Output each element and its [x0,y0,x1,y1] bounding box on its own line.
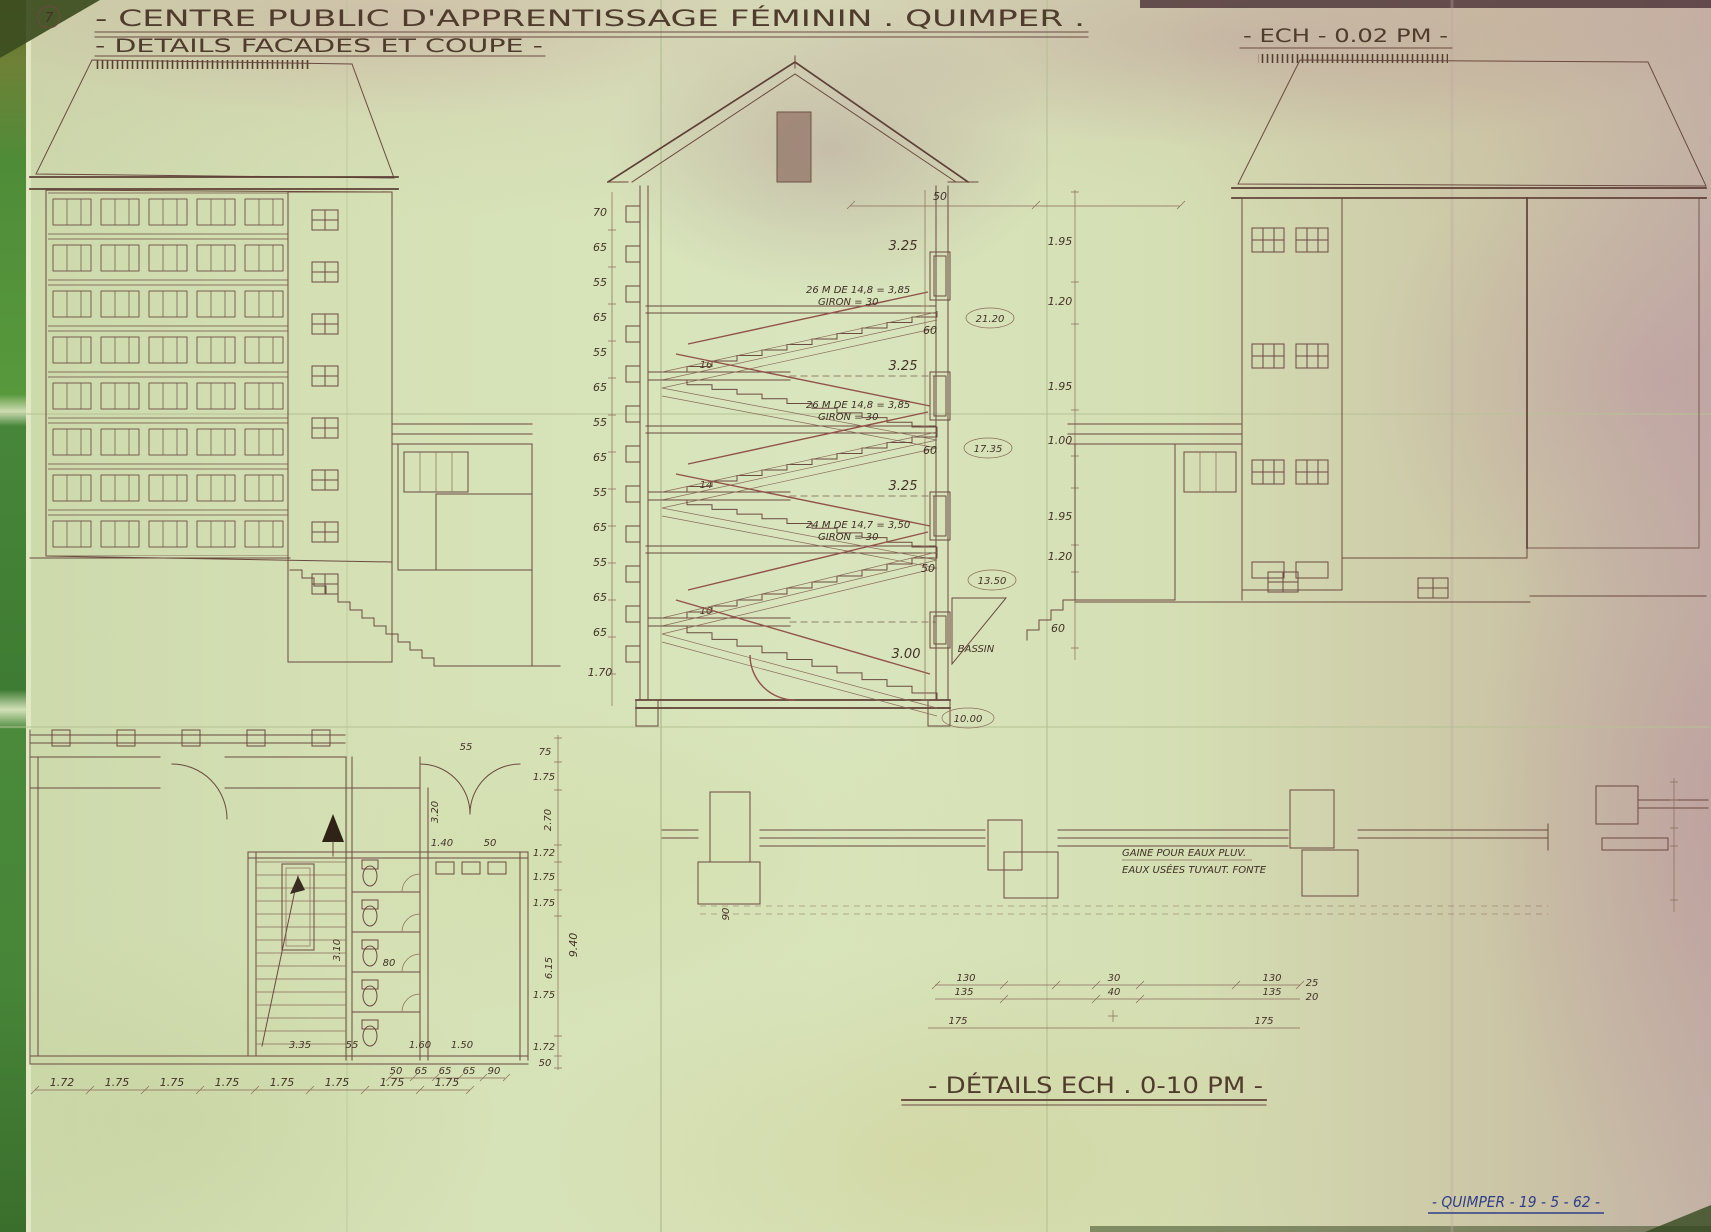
dim-label: 65 [593,381,607,394]
wc-fixtures [362,860,378,1046]
annex-stone [436,494,532,570]
plan-dim: 1.72 [50,1076,75,1089]
details-strip: GAINE POUR EAUX PLUV. EAUX USÉES TUYAUT.… [662,778,1708,1105]
plan-dim: 1.50 [451,1040,473,1051]
title-block: 7 - CENTRE PUBLIC D'APPRENTISSAGE FÉMINI… [38,6,1452,69]
stair-note: GIRON = 30 [818,297,878,308]
dim-label: 65 [593,451,607,464]
dim-label: 65 [593,311,607,324]
dim-label: 1.20 [1048,295,1073,308]
dim-label: 55 [593,556,607,569]
plan-dim: 3.35 [289,1040,311,1051]
stall-doors [402,874,420,1012]
dim-label: 55 [593,486,607,499]
dim-label: 65 [593,626,607,639]
dim-label: 60 [1051,622,1065,635]
dim-label: 1.95 [1048,510,1073,523]
lavabos [436,862,506,874]
north-arrow [322,814,344,842]
right-annex-stone [1075,444,1175,600]
plan-dim: 1.75 [435,1076,460,1089]
dim-label: 1.00 [1048,434,1073,447]
plan-dim: 55 [346,1040,359,1051]
plan-dim: 1.75 [533,872,555,883]
dim-label: 65 [593,521,607,534]
dim-label: 1.95 [1048,235,1073,248]
plan-label: 55 [460,742,473,753]
plan-dim: 1.75 [325,1076,350,1089]
detail-dim: 30 [1108,973,1121,984]
dim-label: 55 [593,276,607,289]
dim-label: 70 [593,206,607,219]
signature-block: - QUIMPER - 19 - 5 - 62 - [1428,1193,1604,1213]
dim-label: 1.20 [1048,550,1073,563]
sheet-number: 7 [45,11,54,26]
plan-dim: 1.75 [270,1076,295,1089]
dim-label: 55 [593,416,607,429]
plan-dim: 1.75 [533,898,555,909]
curtain-wall-grid [48,192,288,556]
stair-note: 24 M DE 14,7 = 3,50 [806,520,910,531]
drawing-svg: 7 - CENTRE PUBLIC D'APPRENTISSAGE FÉMINI… [0,0,1711,1232]
detail-dim: 25 [1306,978,1319,989]
right-facade-elevation [1027,60,1706,640]
plan-dim: 65 [415,1066,428,1077]
level-badge: 10.00 [954,714,983,725]
stair-note: GIRON = 30 [818,412,878,423]
plan-dim: 1.75 [533,990,555,1001]
gaine-note: GAINE POUR EAUX PLUV. [1122,848,1246,859]
plan-label: 3.10 [332,939,343,961]
main-scale: - ECH - 0.02 PM - [1243,25,1448,47]
plan-dim: 1.75 [380,1076,405,1089]
plan-dim: 1.75 [105,1076,130,1089]
slab-dim: 60 [923,444,937,457]
slab-dim: 60 [923,324,937,337]
plan-dim: 6.15 [544,957,555,979]
stepped-wall-corbels [626,206,640,662]
right-wing-grid [1527,198,1699,548]
stone-pier [288,192,392,662]
sheet-title: - CENTRE PUBLIC D'APPRENTISSAGE FÉMININ … [95,6,1085,32]
plan-dim: 1.60 [409,1040,431,1051]
plan-dim: 1.72 [533,1042,555,1053]
plan-dim: 1.75 [533,772,555,783]
detail-dim: 175 [948,1016,967,1027]
right-annex-window [1184,452,1236,492]
stair-volute [750,655,795,700]
sheet-subtitle: - DETAILS FACADES ET COUPE - [95,35,543,57]
signature-text: - QUIMPER - 19 - 5 - 62 - [1432,1193,1600,1211]
plan-dim: 65 [463,1066,476,1077]
left-roof [36,60,394,178]
plan-dim: 2.70 [543,809,554,831]
dim-label: 1.95 [1048,380,1073,393]
right-curtain-wall [1342,198,1527,558]
level-badge: 13.50 [978,576,1007,587]
plan-dim: 90 [488,1066,501,1077]
stair-note: 26 M DE 14,8 = 3,85 [806,285,910,296]
slab-dim: 50 [921,562,935,575]
basement-windows [1268,572,1448,598]
plan-dim: 50 [539,1058,552,1069]
dim-label: 65 [593,241,607,254]
plan-dim: 1.75 [160,1076,185,1089]
bassin-label: BASSIN [958,644,995,655]
dim-label: 1.70 [588,666,613,679]
chimney [777,112,811,182]
plan-label: 50 [484,838,497,849]
hatch-bar-right [1258,54,1448,63]
plan-dim: 1.72 [533,848,555,859]
stone-tower [1242,198,1342,590]
detail-dim: 130 [1262,973,1281,984]
storey-dim: 3.25 [889,479,918,494]
top-dim: 50 [933,190,947,203]
detail-dim: 20 [1306,992,1319,1003]
pilasters [52,730,330,746]
stair-note: GIRON = 30 [818,532,878,543]
storey-dim: 3.25 [889,359,918,374]
level-badge: 21.20 [976,314,1005,325]
left-facade-elevation [30,60,560,666]
plan-dim: 75 [539,747,552,758]
dim-label: 65 [593,591,607,604]
plan-dim: 9.40 [567,933,580,958]
plan-label: 1.40 [431,838,453,849]
floor-plan: 55 3.20 1.40 50 3.10 80 3.35 55 1.60 1.5… [30,730,580,1094]
detail-dim: 90 [721,908,732,921]
plan-dim: 1.75 [215,1076,240,1089]
right-roof [1238,60,1706,186]
stair-arrow [290,876,305,894]
detail-dim: 135 [954,987,973,998]
storey-dim: 3.00 [892,647,921,662]
tower-windows [1252,228,1328,578]
details-title: - DÉTAILS ECH . 0-10 PM - [928,1073,1263,1099]
cross-section: BASSIN 16 14 10 [588,56,1185,728]
gaine-note: EAUX USÉES TUYAUT. FONTE [1122,863,1267,876]
detail-dim: 175 [1254,1016,1273,1027]
level-badge: 17.35 [974,444,1003,455]
dim-label: 55 [593,346,607,359]
blueprint-sheet: 7 - CENTRE PUBLIC D'APPRENTISSAGE FÉMINI… [0,0,1711,1232]
storey-dim: 3.25 [889,239,918,254]
detail-dim: 130 [956,973,975,984]
plan-label: 3.20 [430,801,441,823]
stair-note: 26 M DE 14,8 = 3,85 [806,400,910,411]
detail-dim: 135 [1262,987,1281,998]
pier-windows [312,210,338,594]
plan-label: 80 [383,958,396,969]
detail-dim: 40 [1108,987,1121,998]
